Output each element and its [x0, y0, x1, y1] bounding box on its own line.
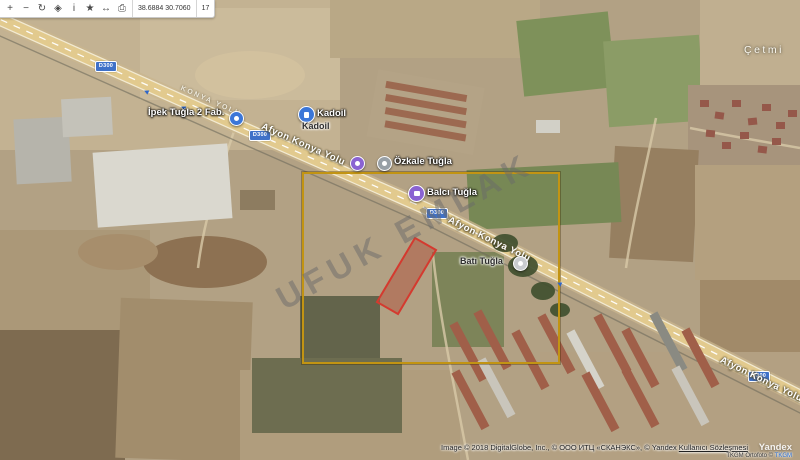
poi-dot-icon — [518, 261, 523, 266]
poi-marker-balci[interactable] — [408, 185, 425, 202]
place-label-cetmi[interactable]: Çetmi — [744, 44, 784, 56]
poi-marker-bati[interactable] — [513, 256, 528, 271]
map-toolbar: + − ↻ ◈ i ★ ↔ ⎙ 38.6884 30.7060 17 — [0, 0, 215, 18]
poi-label-ipek[interactable]: İpek Tuğla 2 Fab. — [148, 107, 224, 118]
poi-dot-icon — [355, 161, 360, 166]
zoom-level-display: 17 — [196, 0, 215, 17]
info-icon[interactable]: i — [66, 1, 82, 17]
bookmark-icon[interactable]: ★ — [82, 1, 98, 17]
measure-icon[interactable]: ↔ — [98, 1, 114, 17]
tkgm-link[interactable]: TKGM — [775, 453, 792, 459]
toolbar-icons: + − ↻ ◈ i ★ ↔ ⎙ — [0, 0, 132, 17]
poi-marker-ozkale[interactable] — [377, 156, 392, 171]
ortofoto-attribution: TKGM Ortofoto © TKGM — [726, 453, 792, 459]
factory-icon — [234, 116, 239, 121]
poi-dot-icon — [382, 161, 387, 166]
map-view: ▶ ▶ ▶ D300 D300 D300 D300 KONYA YOLU Afy… — [0, 0, 800, 460]
zoom-out-icon[interactable]: − — [18, 1, 34, 17]
ortofoto-text: TKGM Ortofoto © — [726, 453, 773, 459]
road-shield-d300: D300 — [426, 208, 448, 219]
coordinates-display: 38.6884 30.7060 — [132, 0, 196, 17]
navigate-icon[interactable]: ◈ — [50, 1, 66, 17]
highlighted-parcel-polygon[interactable] — [350, 230, 450, 340]
poi-sublabel-kadoil[interactable]: Kadoil — [302, 121, 330, 131]
road-shield-d300: D300 — [95, 61, 117, 72]
poi-marker-ipek[interactable] — [229, 111, 244, 126]
attribution-text: Image © 2018 DigitalGlobe, Inc., © ООО И… — [441, 443, 677, 452]
poi-label-ozkale[interactable]: Özkale Tuğla — [394, 156, 452, 167]
refresh-icon[interactable]: ↻ — [34, 1, 50, 17]
terms-link[interactable]: Kullanıcı Sözleşmesi — [679, 443, 748, 452]
lock-icon — [414, 191, 420, 196]
map-attribution: Image © 2018 DigitalGlobe, Inc., © ООО И… — [441, 443, 748, 452]
poi-label-kadoil[interactable]: Kadoil — [317, 108, 346, 119]
fuel-pump-icon — [304, 112, 309, 118]
poi-label-balci[interactable]: Balcı Tuğla — [427, 187, 477, 198]
yandex-logo[interactable]: Yandex — [759, 442, 792, 453]
zoom-in-icon[interactable]: + — [2, 1, 18, 17]
poi-marker-violet[interactable] — [350, 156, 365, 171]
print-icon[interactable]: ⎙ — [114, 1, 130, 17]
poi-label-bati[interactable]: Batı Tuğla — [460, 256, 503, 266]
